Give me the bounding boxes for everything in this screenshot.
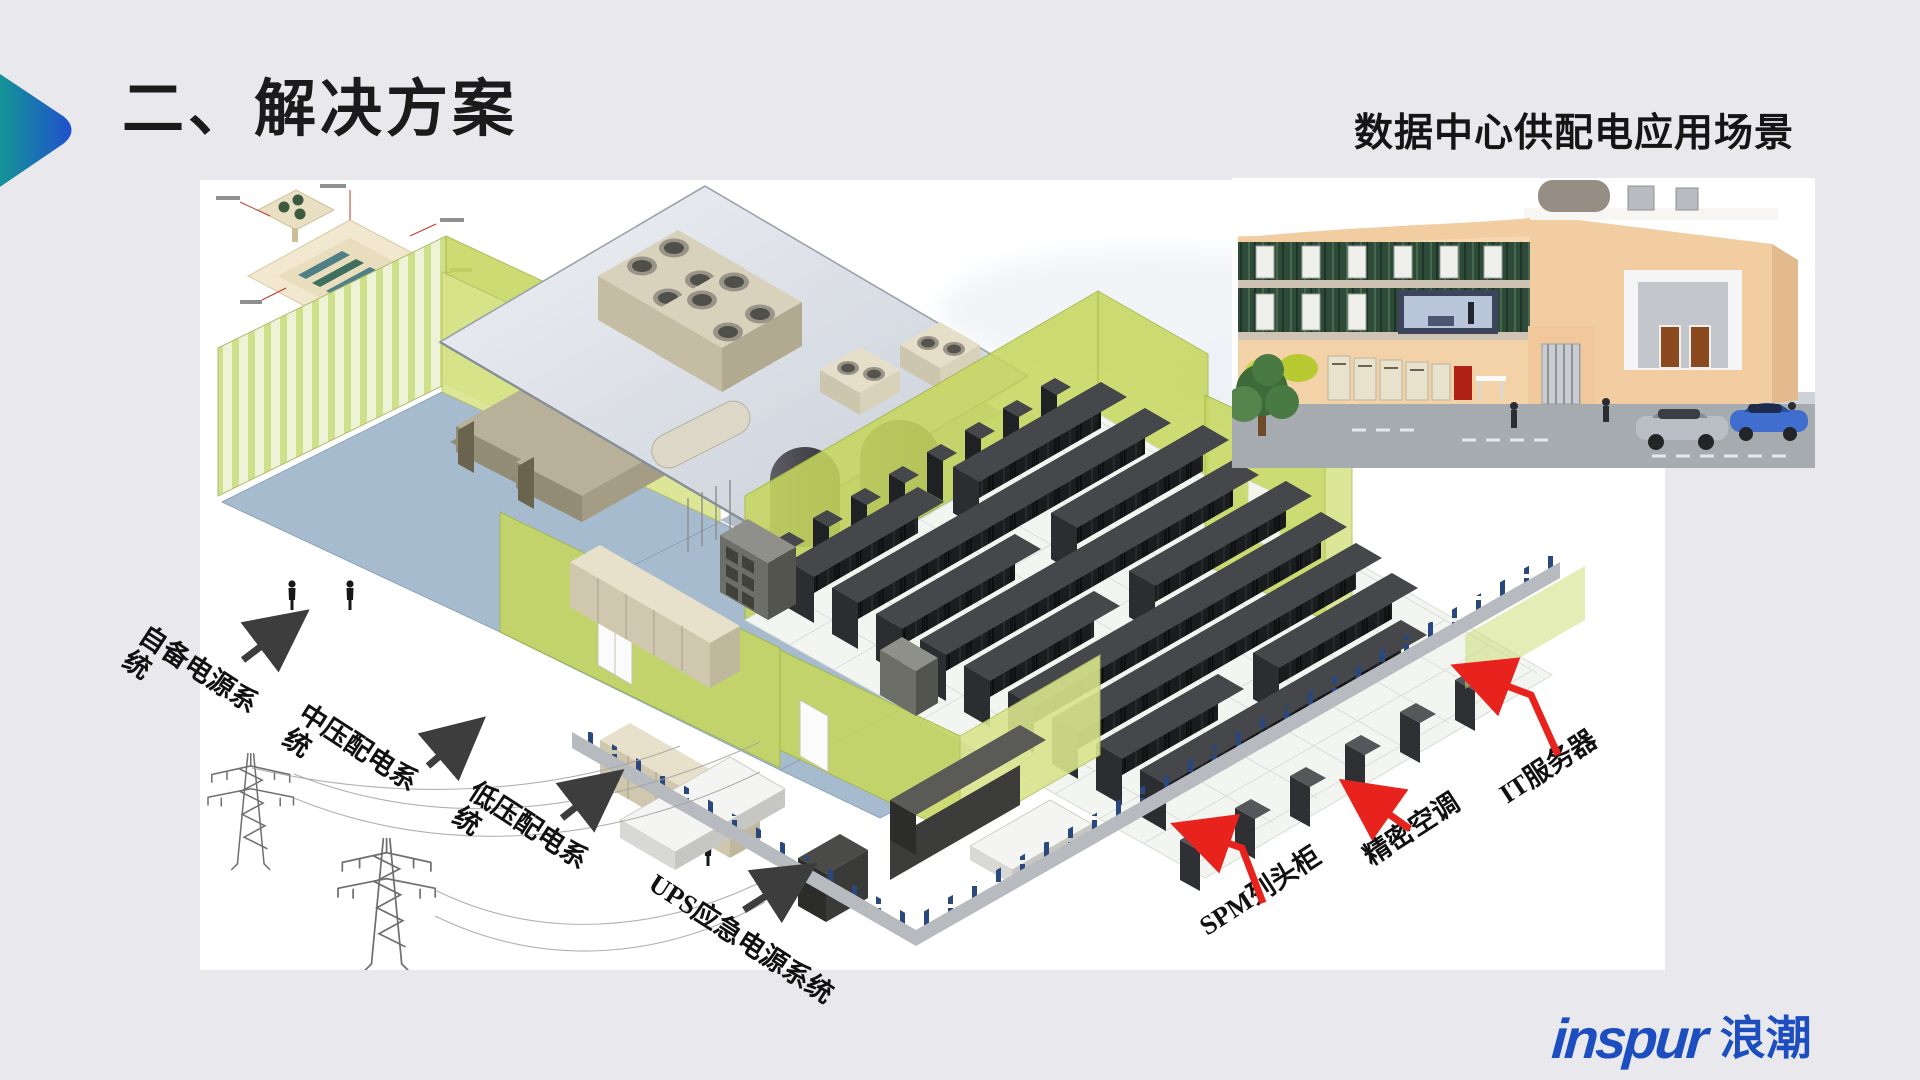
- page-subtitle: 数据中心供配电应用场景: [1354, 102, 1794, 158]
- inspur-logo-cjk: 浪潮: [1720, 1012, 1812, 1064]
- page-title: 二、解决方案: [122, 58, 518, 148]
- person-figure: [288, 580, 295, 610]
- building-cutaway-icon: [1232, 180, 1815, 468]
- accent-chevron-icon: [0, 68, 90, 193]
- inspur-logo: inspur 浪潮: [1552, 1002, 1812, 1071]
- inspur-logo-latin: inspur: [1550, 1006, 1708, 1071]
- slide-canvas: 二、解决方案 数据中心供配电应用场景: [0, 0, 1920, 1080]
- building-inset: [1232, 178, 1815, 468]
- person-figure: [346, 580, 353, 610]
